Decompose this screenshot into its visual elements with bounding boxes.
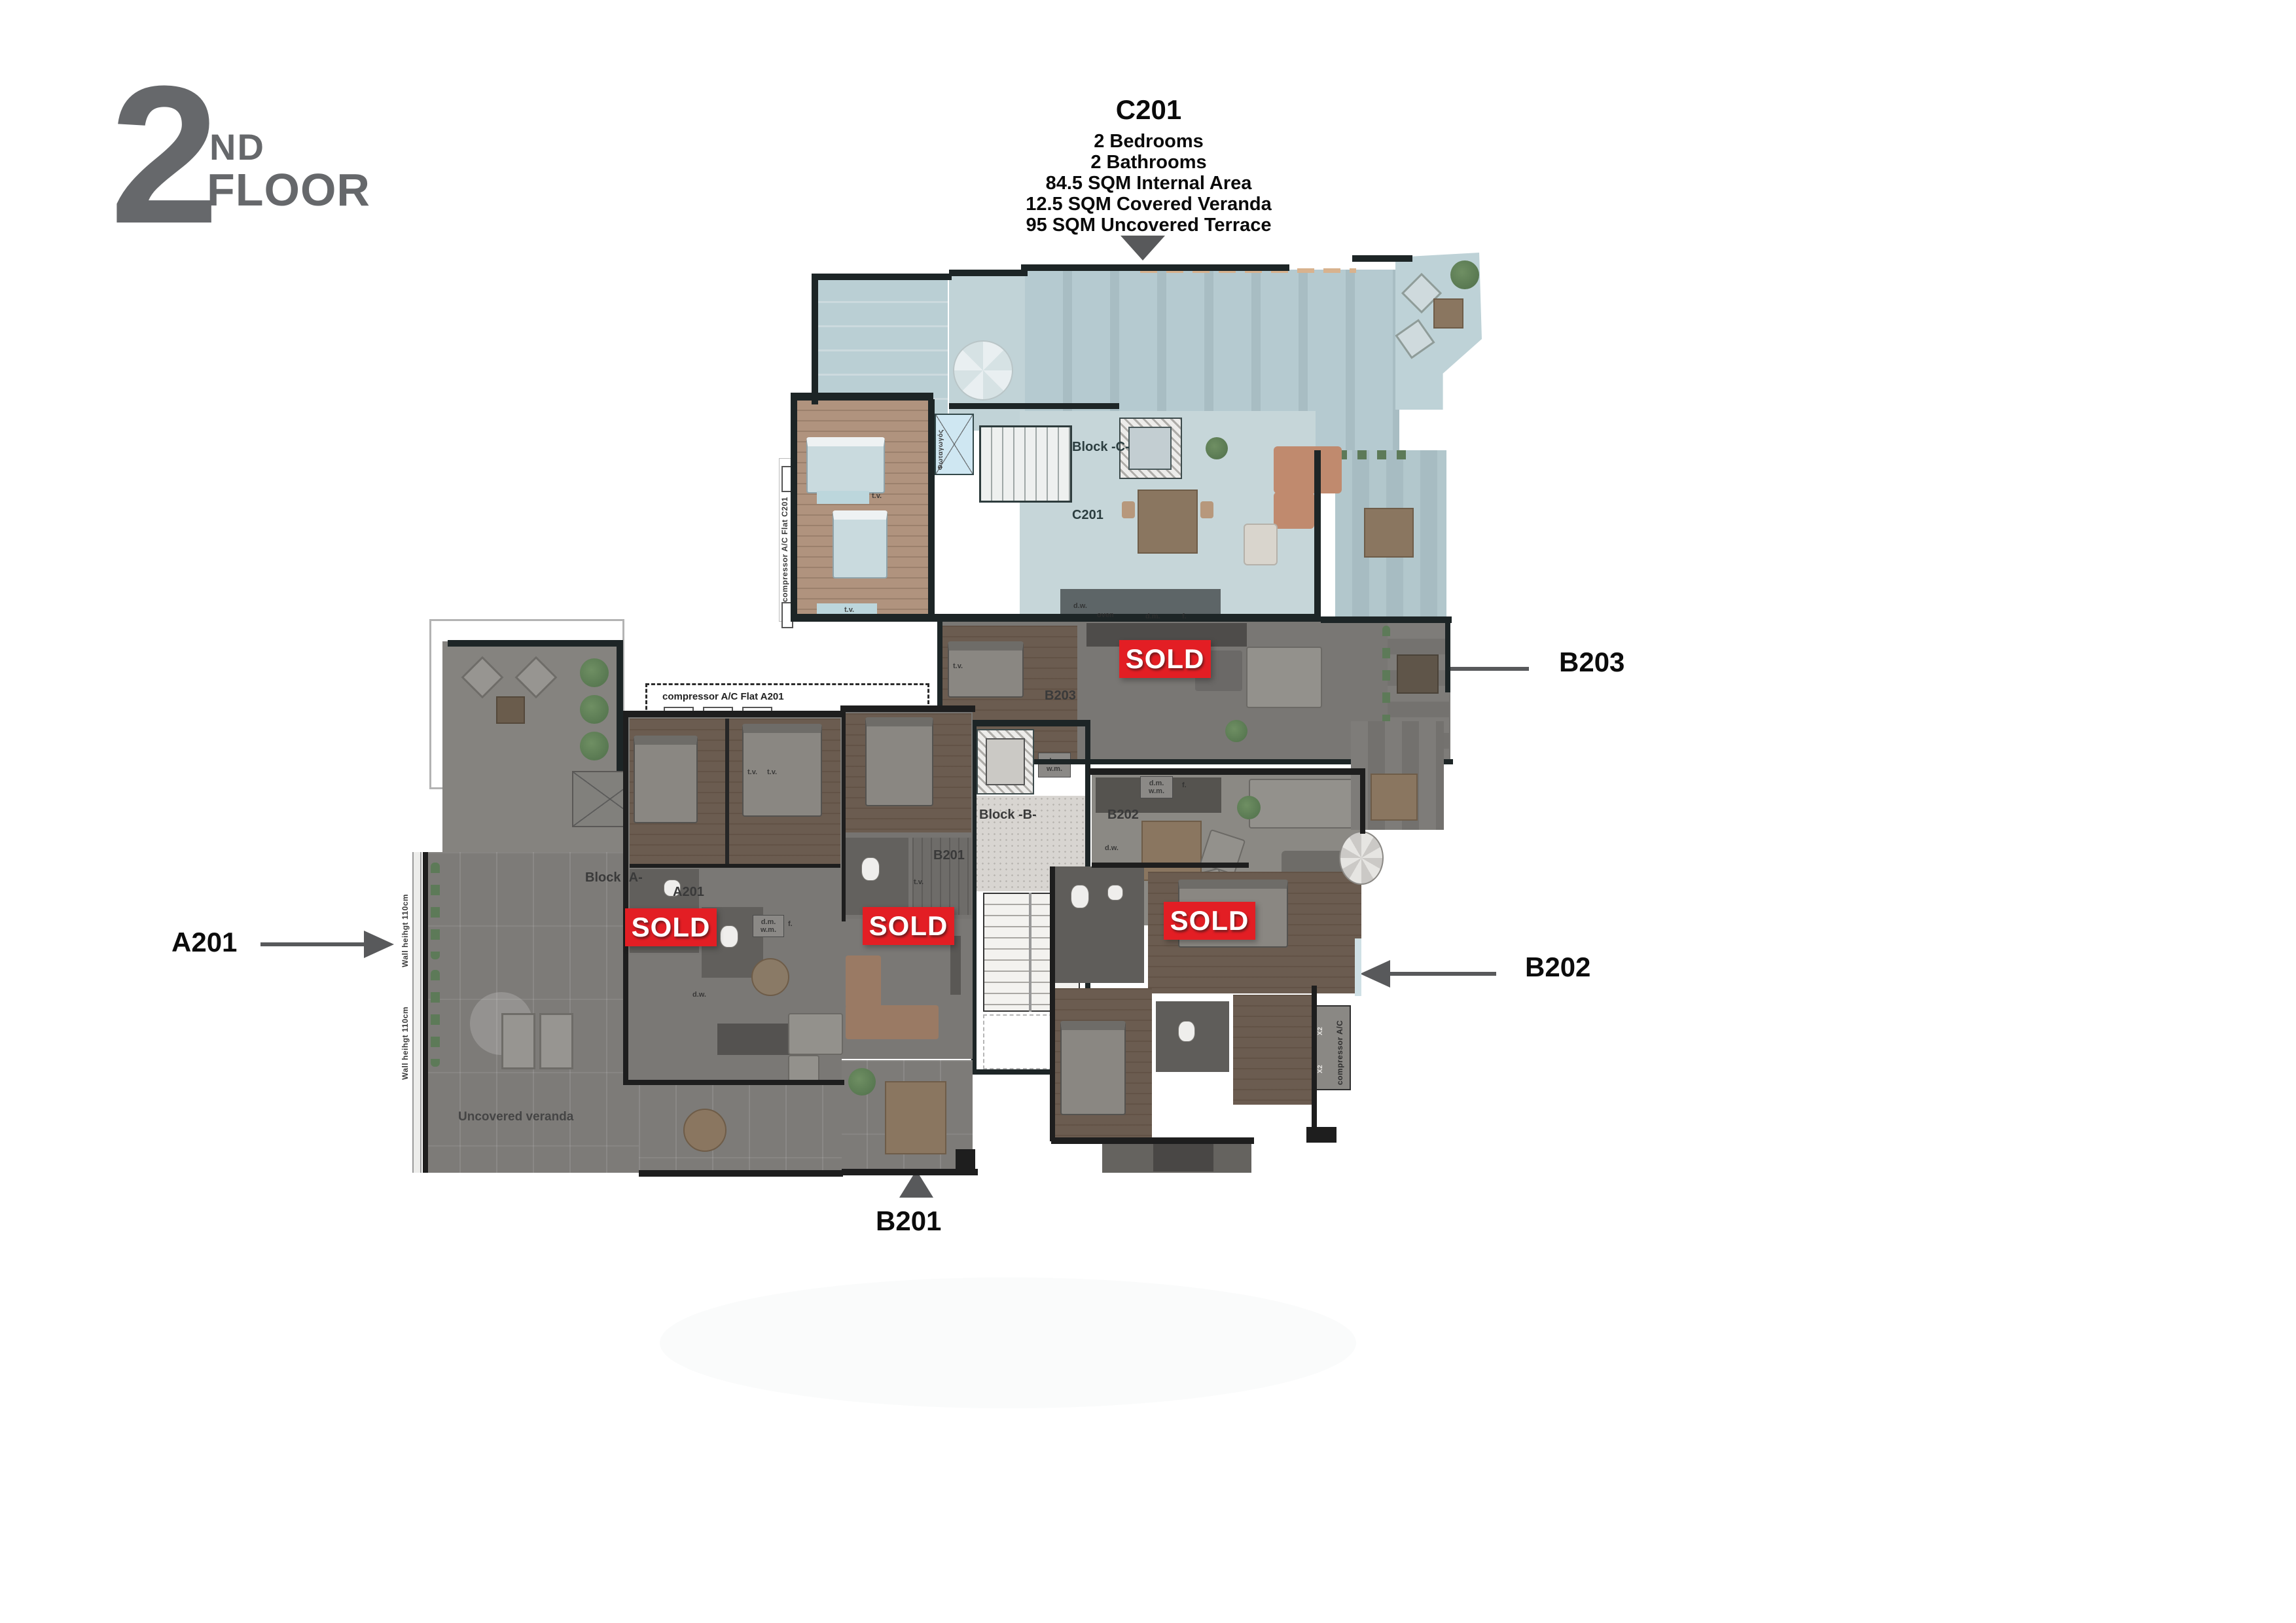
sold-badge-b203[interactable]: SOLD xyxy=(1119,640,1211,678)
dw-label: d.w. xyxy=(1105,844,1119,852)
c-staircase xyxy=(979,425,1072,503)
toilet-icon xyxy=(1071,885,1089,908)
toilet-icon xyxy=(1178,1021,1195,1042)
wm-label: w.m. xyxy=(1047,765,1062,773)
dining-table-icon xyxy=(1138,490,1198,554)
tv-label: t.v. xyxy=(747,768,757,776)
b202-arrow-left-icon xyxy=(1360,960,1390,988)
dm-label: d.m. xyxy=(1145,613,1160,620)
wm-label: w.m. xyxy=(761,926,776,934)
tv-label: t.v. xyxy=(953,662,963,670)
sofa-icon xyxy=(1246,647,1322,708)
lightwell-label: Φωταγωγός xyxy=(937,420,944,470)
unit-c201-label[interactable]: C201 xyxy=(1072,508,1103,523)
dw-label: d.w. xyxy=(692,991,706,999)
callout-spec-terrace: 95 SQM Uncovered Terrace xyxy=(1005,215,1293,236)
oven-label: oven xyxy=(1097,611,1114,619)
plant-icon xyxy=(1237,796,1261,819)
outdoor-dining-table-icon xyxy=(885,1081,946,1154)
sofa-icon xyxy=(846,1005,939,1039)
wall-height-note: Wall heihgt 110cm xyxy=(401,861,410,967)
c-elevator-cab xyxy=(1128,427,1172,470)
toilet-icon xyxy=(861,857,880,881)
callout-unit-title: C201 xyxy=(1005,94,1293,126)
outdoor-dining-table-icon xyxy=(1364,508,1414,558)
x2-label: X2 xyxy=(1317,1054,1324,1073)
outdoor-table-icon xyxy=(1397,654,1439,694)
sold-badge-b202[interactable]: SOLD xyxy=(1164,902,1255,940)
outdoor-dining-table-icon xyxy=(1371,774,1418,821)
wall-height-note: Wall heihgt 110cm xyxy=(401,974,410,1080)
sofa-icon xyxy=(1249,779,1357,829)
plant-icon xyxy=(1225,720,1247,742)
sun-lounger-icon xyxy=(501,1013,535,1069)
watermark-blob xyxy=(660,1277,1356,1408)
compressor-ac-note: compressor A/C xyxy=(1335,1013,1344,1085)
bed-icon xyxy=(833,510,888,579)
bed-icon xyxy=(806,437,885,493)
appliance-box: d.m. w.m. xyxy=(1038,753,1071,777)
b202-bathrooms xyxy=(1055,866,1144,983)
planter-icon xyxy=(431,970,440,1067)
dm-label: d.m. xyxy=(1149,779,1164,787)
plant-icon xyxy=(580,658,609,687)
sold-badge-b201[interactable]: SOLD xyxy=(863,907,954,945)
a201-arrow-right-icon xyxy=(364,931,394,958)
sink-icon xyxy=(1107,885,1123,901)
a201-arrow-line xyxy=(260,942,365,946)
wm-label: w.m. xyxy=(1149,787,1164,795)
floor-ordinal: ND xyxy=(209,126,265,168)
tv-label: t.v. xyxy=(872,492,882,500)
dw-label: d.w. xyxy=(1073,602,1087,610)
floor-number: 2 xyxy=(110,84,219,225)
block-a-label: Block -A- xyxy=(585,870,643,885)
callout-spec-bathrooms: 2 Bathrooms xyxy=(1005,152,1293,173)
bathtub-icon xyxy=(720,925,738,948)
window-band xyxy=(1355,938,1361,996)
dm-label: d.m. xyxy=(761,918,776,926)
b-elevator-cab xyxy=(986,738,1025,785)
floor-word: FLOOR xyxy=(207,164,370,216)
sofa-icon xyxy=(846,955,881,1008)
tv-label: t.v. xyxy=(844,606,854,614)
block-b-label: Block -B- xyxy=(979,808,1037,823)
callout-spec-internal: 84.5 SQM Internal Area xyxy=(1005,173,1293,194)
stair-rail xyxy=(1029,893,1031,1012)
unit-b201-plan-label: B201 xyxy=(933,848,965,863)
sofa-icon xyxy=(788,1013,843,1055)
pointer-label-b202[interactable]: B202 xyxy=(1525,952,1590,983)
a201-lower-veranda xyxy=(639,1084,842,1171)
spiral-staircase-icon xyxy=(1339,831,1384,885)
umbrella-icon xyxy=(953,340,1013,401)
b202-arrow-line xyxy=(1388,972,1496,976)
coffee-table-icon xyxy=(1244,524,1278,565)
outdoor-table-icon xyxy=(1153,1141,1213,1171)
planter-icon xyxy=(431,863,440,959)
callout-spec-bedrooms: 2 Bedrooms xyxy=(1005,131,1293,152)
plant-icon xyxy=(1206,437,1228,459)
b202-bedroom-right xyxy=(1233,995,1316,1105)
plant-icon xyxy=(580,732,609,760)
sofa-icon xyxy=(1274,446,1342,493)
unit-a201-plan-label: A201 xyxy=(673,885,704,900)
pointer-label-b201[interactable]: B201 xyxy=(876,1205,941,1237)
partition-wall xyxy=(725,719,729,865)
unit-b202-plan-label: B202 xyxy=(1107,808,1139,823)
floorplan-page: { "header": { "floor_number": "2", "floo… xyxy=(0,0,2296,1623)
chair-icon xyxy=(1122,501,1135,518)
block-c-label: Block -C- xyxy=(1072,440,1130,455)
veranda-railing xyxy=(412,852,422,1173)
compressor-a201-note: compressor A/C Flat A201 xyxy=(662,691,784,702)
table-icon xyxy=(496,696,525,724)
f-label: f. xyxy=(788,920,793,928)
tv-cabinet xyxy=(817,491,869,504)
sun-lounger-icon xyxy=(539,1013,573,1069)
chair-icon xyxy=(1200,501,1213,518)
sold-badge-a201[interactable]: SOLD xyxy=(625,908,717,946)
f-label: f. xyxy=(1182,781,1187,789)
round-table-icon xyxy=(751,958,789,996)
pointer-label-a201[interactable]: A201 xyxy=(171,927,237,958)
callout-pointer-down-icon xyxy=(1121,236,1165,260)
plant-icon xyxy=(1450,260,1479,289)
sofa-icon xyxy=(1274,492,1314,529)
plant-icon xyxy=(580,695,609,724)
tv-label: t.v. xyxy=(914,878,924,886)
pointer-label-b203[interactable]: B203 xyxy=(1559,647,1624,678)
f-label: f. xyxy=(1182,613,1187,620)
unit-b203-plan-label: B203 xyxy=(1045,688,1076,704)
bed-icon xyxy=(634,736,698,823)
c-bedrooms-area xyxy=(796,399,931,616)
planter-icon xyxy=(1338,450,1416,459)
round-table-icon xyxy=(683,1109,726,1152)
x2-label: X2 xyxy=(1317,1016,1324,1035)
tv-label: t.v. xyxy=(767,768,777,776)
appliance-box: d.m. w.m. xyxy=(1140,776,1173,798)
bed-icon xyxy=(1060,1021,1126,1115)
bed-icon xyxy=(865,717,933,806)
table-icon xyxy=(1433,298,1463,329)
callout-spec-veranda: 12.5 SQM Covered Veranda xyxy=(1005,194,1293,215)
compressor-c201-note: compressor A/C Flat C201 xyxy=(780,504,789,602)
plant-icon xyxy=(848,1068,876,1096)
appliance-box: d.m. w.m. xyxy=(753,915,784,937)
callout-c201[interactable]: C201 2 Bedrooms 2 Bathrooms 84.5 SQM Int… xyxy=(1005,94,1293,236)
uncovered-veranda-label: Uncovered veranda xyxy=(458,1110,573,1124)
